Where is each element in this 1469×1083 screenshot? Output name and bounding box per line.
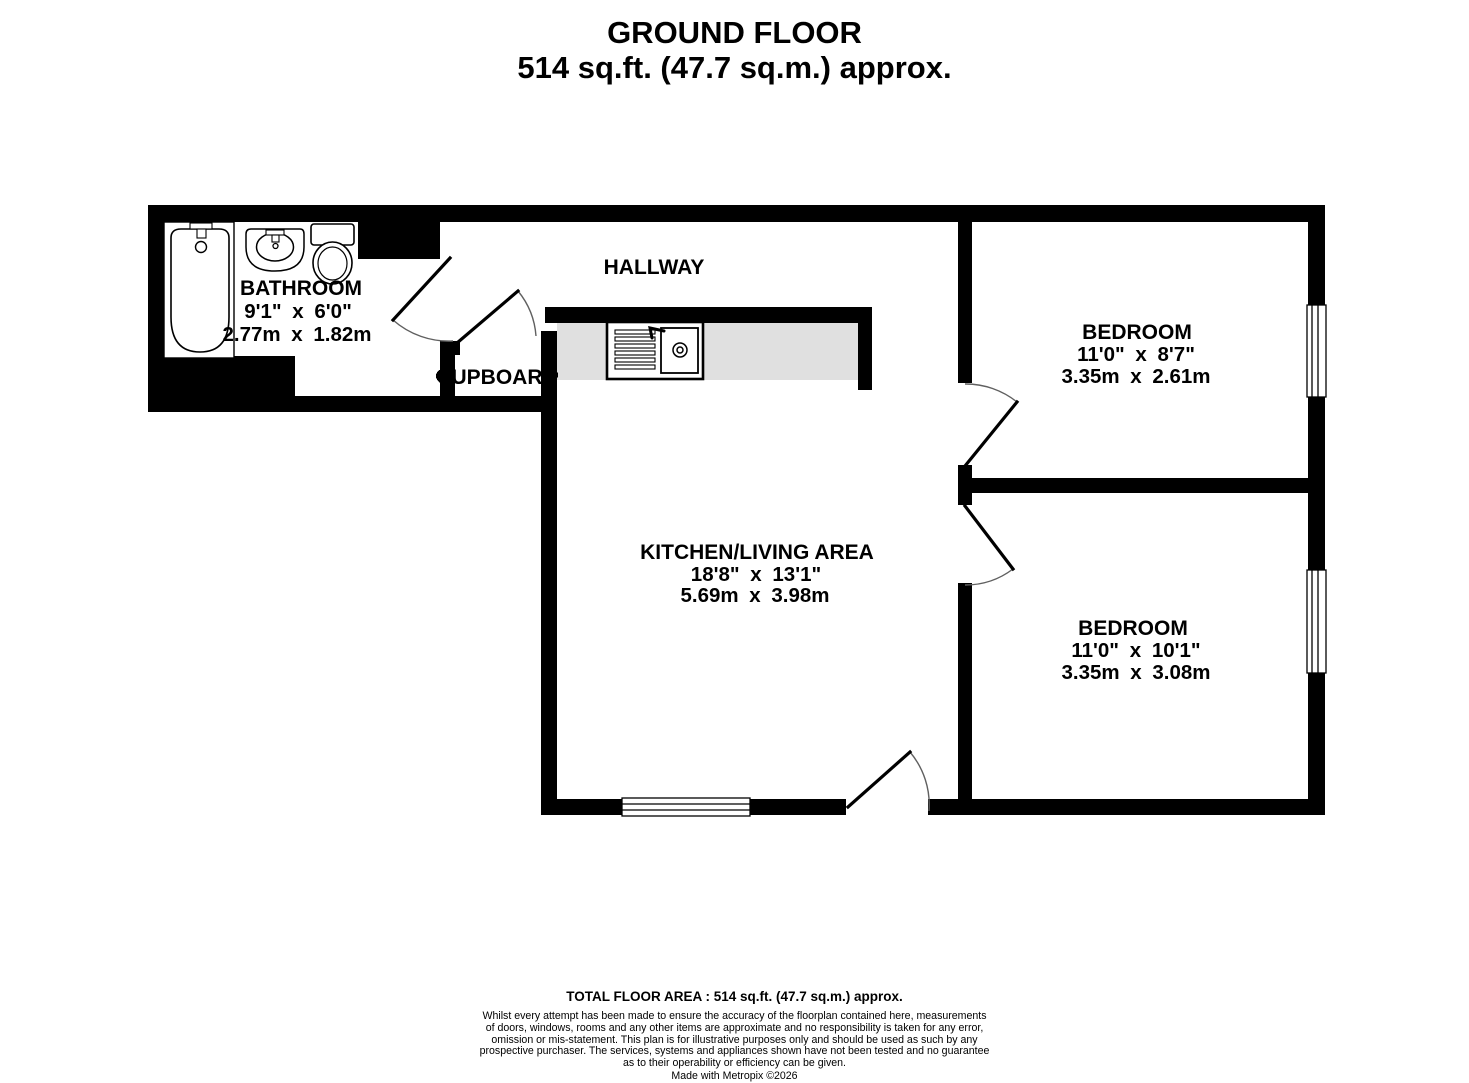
bedroom-bottom-window	[1307, 570, 1326, 673]
bathroom-door-arc	[393, 320, 453, 341]
kitchen-living-metric: 5.69m x 3.98m	[680, 584, 829, 607]
kitchen-sink-icon	[607, 322, 703, 379]
kitchen-window	[622, 798, 750, 816]
bathroom-label: BATHROOM	[240, 277, 362, 300]
bedroom-top-imperial: 11'0" x 8'7"	[1077, 343, 1195, 366]
wall-bottom-seg1	[541, 799, 622, 815]
wall-toilet-right-block	[358, 222, 440, 259]
disclaimer-line: of doors, windows, rooms and any other i…	[0, 1023, 1469, 1035]
cupboard-door-leaf	[457, 291, 518, 343]
wall-kitchen-left	[541, 331, 557, 815]
bathroom-basin-icon	[246, 229, 304, 271]
bedroom-bottom-metric: 3.35m x 3.08m	[1061, 661, 1210, 684]
kitchen-living-imperial: 18'8" x 13'1"	[691, 563, 821, 586]
wall-right-top	[1308, 205, 1325, 305]
wall-bottom-seg2	[750, 799, 846, 815]
floorplan-page: GROUND FLOOR 514 sq.ft. (47.7 sq.m.) app…	[0, 0, 1469, 1080]
bedroom-top-label: BEDROOM	[1082, 321, 1192, 344]
wall-wing-bottom	[148, 396, 557, 412]
bathroom-metric: 2.77m x 1.82m	[222, 323, 371, 346]
wall-bedroom-divider-vertical-bottom	[958, 583, 972, 799]
wall-kitchen-top	[545, 307, 872, 323]
wall-under-bathtub	[148, 356, 295, 398]
bedroom-bottom-label: BEDROOM	[1078, 617, 1188, 640]
plan-footer: TOTAL FLOOR AREA : 514 sq.ft. (47.7 sq.m…	[0, 989, 1469, 1083]
bedroom-bottom-imperial: 11'0" x 10'1"	[1071, 639, 1200, 662]
bedroom-top-window	[1307, 305, 1326, 397]
bedroom-bottom-door-arc	[965, 569, 1013, 585]
toilet-icon	[311, 224, 354, 284]
cupboard-door-arc	[518, 291, 536, 336]
wall-bedroom-divider-vertical-top	[958, 222, 972, 383]
bathroom-door-leaf	[393, 258, 450, 320]
total-floor-area: TOTAL FLOOR AREA : 514 sq.ft. (47.7 sq.m…	[0, 989, 1469, 1004]
kitchen-living-label: KITCHEN/LIVING AREA	[640, 541, 874, 564]
disclaimer-line: as to their operability or efficiency ca…	[0, 1058, 1469, 1070]
bedroom-bottom-door-leaf	[965, 506, 1013, 569]
bathroom-imperial: 9'1" x 6'0"	[244, 300, 352, 323]
wall-counter-end-cap	[858, 307, 872, 390]
floorplan-drawing: HALLWAY BATHROOM 9'1" x 6'0" 2.77m x 1.8…	[0, 0, 1469, 1080]
bedroom-top-door-arc	[965, 384, 1017, 402]
kitchen-counter	[557, 323, 858, 380]
bedroom-top-door-leaf	[965, 402, 1017, 466]
cupboard-label: CUPBOARD	[436, 366, 557, 389]
wall-right-bottom	[1308, 673, 1325, 815]
entrance-door-leaf	[848, 752, 910, 807]
wall-between-bedrooms	[958, 478, 1325, 493]
wall-right-middle	[1308, 397, 1325, 570]
wall-bottom-seg3	[928, 799, 1325, 815]
bedroom-top-metric: 3.35m x 2.61m	[1061, 365, 1210, 388]
metropix-credit: Made with Metropix ©2026	[0, 1071, 1469, 1083]
entrance-door-arc	[910, 752, 929, 811]
hallway-label: HALLWAY	[604, 256, 705, 279]
wall-top	[148, 205, 1325, 222]
